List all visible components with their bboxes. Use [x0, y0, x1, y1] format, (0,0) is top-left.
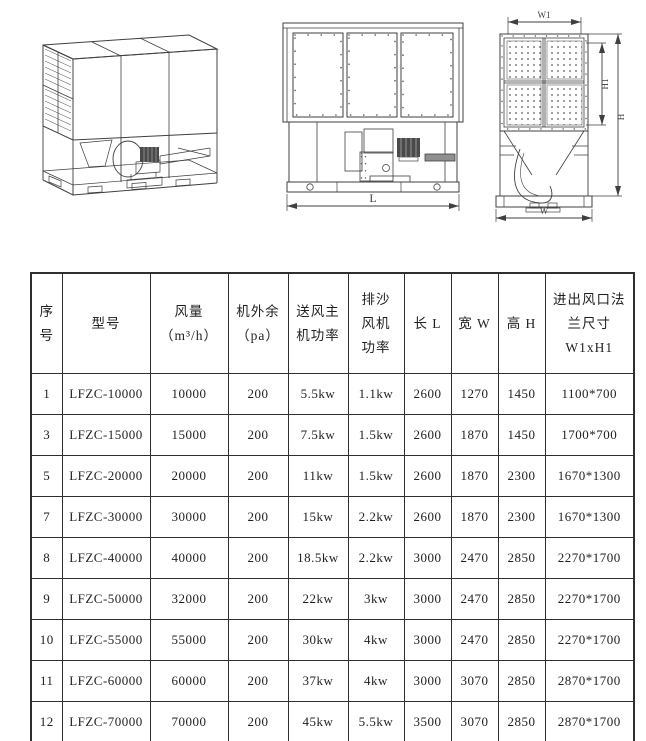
header-cell: 进出风口法兰尺寸W1xH1: [545, 273, 634, 373]
table-cell: 2.2kw: [348, 537, 404, 578]
table-cell: 5.5kw: [348, 701, 404, 741]
table-cell: 3kw: [348, 578, 404, 619]
table-cell: 2850: [498, 660, 545, 701]
table-cell: 1.5kw: [348, 455, 404, 496]
table-cell: 4kw: [348, 619, 404, 660]
table-cell: 200: [228, 414, 288, 455]
panel-screw-dots: [295, 35, 341, 115]
table-cell: 5: [31, 455, 62, 496]
table-cell: 1870: [451, 496, 498, 537]
table-cell: 2470: [451, 578, 498, 619]
table-cell: 2270*1700: [545, 578, 634, 619]
dimension-label-w1: W1: [538, 10, 551, 20]
table-cell: 3000: [404, 660, 451, 701]
dimension-label-length: L: [369, 191, 376, 205]
spec-table: 序号型号风量（m³/h）机外余（pa）送风主机功率排沙风机功率长 L宽 W高 H…: [30, 272, 635, 741]
table-cell: 2.2kw: [348, 496, 404, 537]
table-cell: 200: [228, 455, 288, 496]
table-cell: 32000: [150, 578, 228, 619]
table-cell: LFZC-40000: [62, 537, 150, 578]
table-row: 10LFZC-550005500020030kw4kw3000247028502…: [31, 619, 634, 660]
perforated-quadrant: [507, 85, 541, 125]
table-cell: 1450: [498, 373, 545, 414]
table-cell: 1100*700: [545, 373, 634, 414]
header-cell: 宽 W: [451, 273, 498, 373]
scroll-curve: [514, 149, 551, 203]
table-cell: 10000: [150, 373, 228, 414]
table-cell: 2850: [498, 578, 545, 619]
table-cell: 2870*1700: [545, 701, 634, 741]
table-cell: 11: [31, 660, 62, 701]
table-cell: 200: [228, 578, 288, 619]
table-cell: 2470: [451, 619, 498, 660]
table-cell: 2850: [498, 619, 545, 660]
table-cell: 12: [31, 701, 62, 741]
header-cell: 型号: [62, 273, 150, 373]
table-cell: 2600: [404, 373, 451, 414]
table-cell: 3000: [404, 537, 451, 578]
table-cell: 3: [31, 414, 62, 455]
header-cell: 风量（m³/h）: [150, 273, 228, 373]
header-cell: 送风主机功率: [288, 273, 348, 373]
table-cell: LFZC-55000: [62, 619, 150, 660]
fan-upper-box: [364, 129, 393, 153]
table-row: 8LFZC-400004000020018.5kw2.2kw3000247028…: [31, 537, 634, 578]
fan-scroll: [113, 141, 143, 177]
table-cell: LFZC-10000: [62, 373, 150, 414]
table-cell: 200: [228, 373, 288, 414]
table-cell: 2600: [404, 496, 451, 537]
table-cell: 3000: [404, 619, 451, 660]
table-cell: 1870: [451, 455, 498, 496]
table-cell: LFZC-15000: [62, 414, 150, 455]
spec-sheet-page: L: [0, 0, 646, 741]
table-cell: 200: [228, 701, 288, 741]
table-cell: 1: [31, 373, 62, 414]
table-cell: LFZC-70000: [62, 701, 150, 741]
dimension-label-w: W: [540, 206, 549, 216]
table-cell: 2600: [404, 455, 451, 496]
table-cell: 40000: [150, 537, 228, 578]
side-cabinet-lines: [496, 17, 622, 222]
table-cell: 45kw: [288, 701, 348, 741]
header-cell: 排沙风机功率: [348, 273, 404, 373]
side-view-drawing: W1 H1 H W: [490, 3, 635, 228]
table-cell: 20000: [150, 455, 228, 496]
table-cell: LFZC-20000: [62, 455, 150, 496]
table-row: 9LFZC-500003200020022kw3kw30002470285022…: [31, 578, 634, 619]
table-cell: 1.1kw: [348, 373, 404, 414]
side-bar: [425, 154, 455, 161]
base-hole-right: [434, 184, 440, 190]
table-cell: 8: [31, 537, 62, 578]
table-cell: 9: [31, 578, 62, 619]
table-row: 5LFZC-200002000020011kw1.5kw260018702300…: [31, 455, 634, 496]
table-cell: 2850: [498, 701, 545, 741]
spec-table-body: 1LFZC-10000100002005.5kw1.1kw26001270145…: [31, 373, 634, 741]
isometric-view-drawing: [28, 25, 233, 215]
table-cell: 2470: [451, 537, 498, 578]
table-cell: 2300: [498, 496, 545, 537]
table-cell: 22kw: [288, 578, 348, 619]
table-cell: 15000: [150, 414, 228, 455]
table-cell: 200: [228, 619, 288, 660]
table-cell: LFZC-60000: [62, 660, 150, 701]
table-cell: 7: [31, 496, 62, 537]
table-cell: 70000: [150, 701, 228, 741]
table-cell: LFZC-50000: [62, 578, 150, 619]
table-cell: 7.5kw: [288, 414, 348, 455]
table-cell: 10: [31, 619, 62, 660]
table-cell: 2300: [498, 455, 545, 496]
table-row: 3LFZC-15000150002007.5kw1.5kw26001870145…: [31, 414, 634, 455]
table-row: 7LFZC-300003000020015kw2.2kw260018702300…: [31, 496, 634, 537]
table-cell: 15kw: [288, 496, 348, 537]
table-cell: 37kw: [288, 660, 348, 701]
table-cell: 11kw: [288, 455, 348, 496]
table-cell: 200: [228, 660, 288, 701]
header-cell: 高 H: [498, 273, 545, 373]
table-cell: 200: [228, 496, 288, 537]
table-cell: 3000: [404, 578, 451, 619]
shaft-hole: [383, 165, 390, 172]
header-cell: 长 L: [404, 273, 451, 373]
table-cell: 1870: [451, 414, 498, 455]
table-cell: 30kw: [288, 619, 348, 660]
table-cell: 1270: [451, 373, 498, 414]
table-cell: 3070: [451, 660, 498, 701]
hopper-lines: [504, 131, 584, 175]
perforated-quadrant: [547, 85, 582, 125]
table-cell: 1670*1300: [545, 496, 634, 537]
table-cell: 1450: [498, 414, 545, 455]
table-cell: 3500: [404, 701, 451, 741]
table-cell: 5.5kw: [288, 373, 348, 414]
table-cell: 55000: [150, 619, 228, 660]
table-cell: 3070: [451, 701, 498, 741]
table-cell: 2600: [404, 414, 451, 455]
inlet-duct: [345, 132, 362, 171]
table-cell: 200: [228, 537, 288, 578]
hopper-outline: [80, 140, 112, 167]
header-cell: 序号: [31, 273, 62, 373]
table-cell: 2870*1700: [545, 660, 634, 701]
table-row: 11LFZC-600006000020037kw4kw3000307028502…: [31, 660, 634, 701]
front-view-drawing: L: [280, 18, 475, 213]
table-cell: 2850: [498, 537, 545, 578]
table-cell: 18.5kw: [288, 537, 348, 578]
base-hole-left: [307, 184, 313, 190]
table-cell: 30000: [150, 496, 228, 537]
perforated-quadrant: [547, 41, 582, 79]
table-cell: 1700*700: [545, 414, 634, 455]
forklift-pockets: [49, 176, 190, 193]
table-row: 12LFZC-700007000020045kw5.5kw35003070285…: [31, 701, 634, 741]
dimension-label-h: H: [616, 113, 626, 120]
table-cell: 2270*1700: [545, 619, 634, 660]
table-cell: 60000: [150, 660, 228, 701]
table-cell: LFZC-30000: [62, 496, 150, 537]
isometric-cabinet-lines: [43, 35, 217, 195]
table-cell: 1.5kw: [348, 414, 404, 455]
table-cell: 2270*1700: [545, 537, 634, 578]
spec-table-header-row: 序号型号风量（m³/h）机外余（pa）送风主机功率排沙风机功率长 L宽 W高 H…: [31, 273, 634, 373]
table-cell: 4kw: [348, 660, 404, 701]
table-cell: 1670*1300: [545, 455, 634, 496]
perforated-quadrant: [507, 41, 541, 79]
table-row: 1LFZC-10000100002005.5kw1.1kw26001270145…: [31, 373, 634, 414]
front-cabinet-lines: [283, 23, 463, 211]
header-cell: 机外余（pa）: [228, 273, 288, 373]
dimension-label-h1: H1: [600, 79, 610, 90]
